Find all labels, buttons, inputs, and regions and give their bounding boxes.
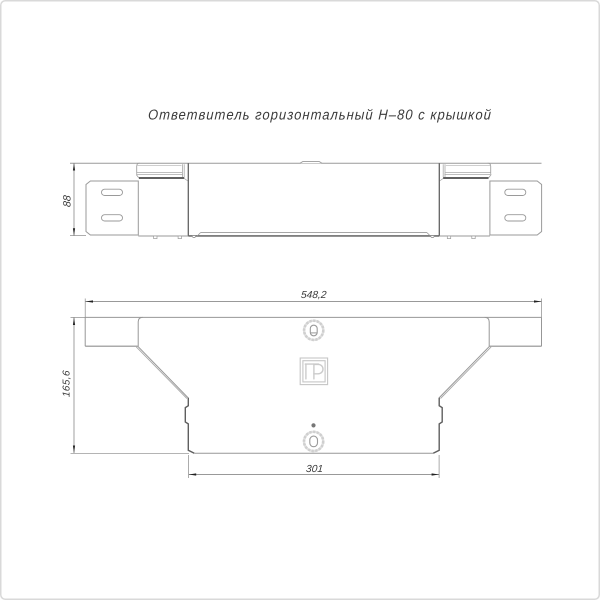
svg-text:301: 301: [306, 464, 324, 475]
svg-text:548,2: 548,2: [301, 290, 328, 301]
svg-text:Ответвитель горизонтальный Н–8: Ответвитель горизонтальный Н–80 с крышко…: [148, 107, 493, 123]
svg-text:88: 88: [62, 195, 74, 208]
svg-text:165,6: 165,6: [61, 370, 72, 398]
